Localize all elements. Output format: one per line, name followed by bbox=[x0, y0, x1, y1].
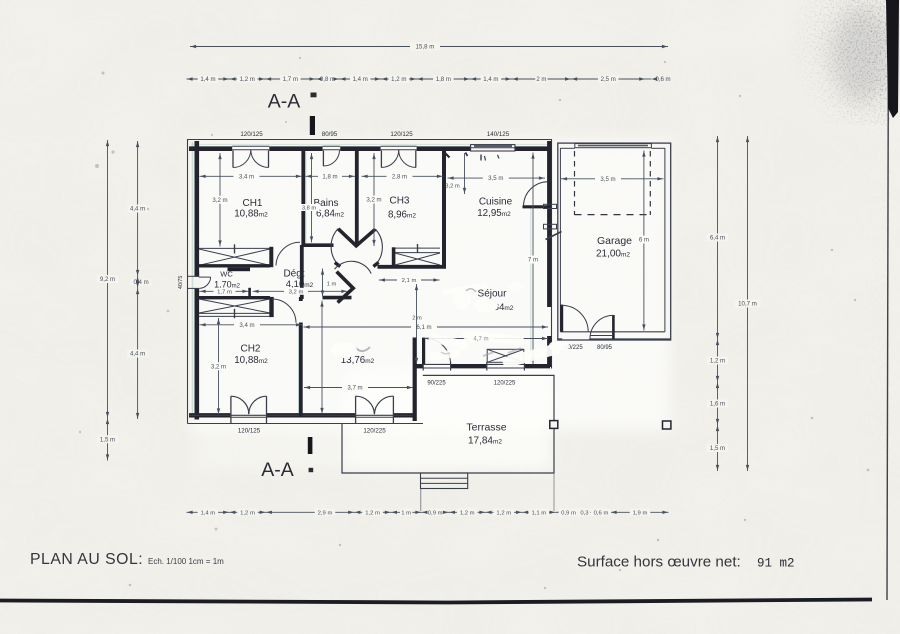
svg-text:1,5 m: 1,5 m bbox=[100, 436, 115, 443]
svg-text:A-A: A-A bbox=[268, 91, 301, 113]
svg-text:3,8 m: 3,8 m bbox=[302, 206, 316, 212]
svg-text:1,2 m: 1,2 m bbox=[496, 510, 511, 516]
svg-text:PLAN AU SOL:: PLAN AU SOL: bbox=[30, 551, 143, 568]
svg-text:0,6 m: 0,6 m bbox=[594, 510, 609, 516]
svg-text:Dégt: Dégt bbox=[283, 269, 304, 280]
svg-text:91 m2: 91 m2 bbox=[757, 557, 795, 571]
svg-text:3,4 m: 3,4 m bbox=[239, 173, 254, 180]
svg-text:CH3: CH3 bbox=[389, 196, 409, 207]
svg-text:2,9 m: 2,9 m bbox=[318, 510, 333, 516]
svg-text:Surface hors œuvre net:: Surface hors œuvre net: bbox=[577, 554, 741, 571]
svg-text:1,8 m: 1,8 m bbox=[322, 173, 337, 180]
svg-text:1,4 m: 1,4 m bbox=[200, 76, 215, 83]
svg-text:4,7 m: 4,7 m bbox=[473, 336, 488, 343]
svg-text:Terrasse: Terrasse bbox=[466, 422, 506, 434]
svg-text:Séjour: Séjour bbox=[478, 289, 508, 300]
svg-text:3,2 m: 3,2 m bbox=[366, 197, 381, 204]
svg-text:1,7 m: 1,7 m bbox=[283, 76, 298, 83]
svg-text:WC: WC bbox=[220, 270, 233, 279]
svg-text:1,6 m: 1,6 m bbox=[710, 401, 725, 408]
svg-text:1,2 m: 1,2 m bbox=[460, 510, 475, 516]
svg-text:4,4 m: 4,4 m bbox=[130, 351, 145, 358]
svg-text:40/75: 40/75 bbox=[178, 276, 184, 290]
svg-text:3,7 m: 3,7 m bbox=[347, 385, 362, 392]
svg-text:80/95: 80/95 bbox=[597, 345, 613, 351]
svg-text:CH1: CH1 bbox=[242, 198, 262, 209]
svg-text:1,4 m: 1,4 m bbox=[483, 76, 498, 83]
svg-text:7 m: 7 m bbox=[528, 257, 538, 264]
svg-text:1,4 m: 1,4 m bbox=[200, 510, 215, 516]
svg-text:2,1 m: 2,1 m bbox=[402, 278, 417, 284]
svg-text:CH2: CH2 bbox=[240, 344, 260, 355]
svg-text:Ech. 1/100 1cm = 1m: Ech. 1/100 1cm = 1m bbox=[148, 557, 224, 566]
svg-text:3,2 m: 3,2 m bbox=[212, 197, 227, 204]
svg-text:0,3: 0,3 bbox=[580, 510, 589, 516]
svg-text:140/125: 140/125 bbox=[487, 131, 510, 138]
svg-text:90/225: 90/225 bbox=[427, 381, 446, 387]
svg-text:120/125: 120/125 bbox=[390, 131, 413, 138]
svg-text:1,2 m: 1,2 m bbox=[240, 76, 255, 83]
svg-text:2,8 m: 2,8 m bbox=[392, 173, 407, 180]
svg-text:2 m: 2 m bbox=[412, 316, 422, 322]
svg-text:6,4 m: 6,4 m bbox=[710, 235, 725, 242]
svg-text:0,8 m: 0,8 m bbox=[320, 76, 335, 83]
svg-text:6 m: 6 m bbox=[639, 237, 649, 244]
svg-text:1,4 m: 1,4 m bbox=[353, 76, 368, 83]
svg-text:6,1 m: 6,1 m bbox=[416, 324, 431, 331]
svg-text:0,6 m: 0,6 m bbox=[655, 76, 670, 83]
svg-text:1,9 m: 1,9 m bbox=[633, 510, 648, 516]
svg-text:3,5 m: 3,5 m bbox=[600, 176, 615, 183]
svg-text:0,9 m: 0,9 m bbox=[561, 510, 576, 516]
svg-text:3,2 m: 3,2 m bbox=[289, 289, 304, 295]
svg-text:10,7 m: 10,7 m bbox=[738, 301, 757, 308]
svg-text:1,7 m: 1,7 m bbox=[217, 289, 232, 295]
svg-text:1,2 m: 1,2 m bbox=[710, 358, 725, 365]
svg-text:3,2 m: 3,2 m bbox=[211, 363, 226, 370]
svg-text:0,9 m: 0,9 m bbox=[428, 510, 443, 516]
svg-text:120/225: 120/225 bbox=[494, 381, 516, 387]
svg-text:2,5 m: 2,5 m bbox=[601, 76, 616, 83]
svg-text:0,4 m: 0,4 m bbox=[133, 279, 148, 286]
svg-text:1 m: 1 m bbox=[327, 282, 337, 288]
svg-text:80/95: 80/95 bbox=[322, 131, 338, 138]
svg-text:4,4 m: 4,4 m bbox=[130, 206, 145, 213]
svg-text:2 m: 2 m bbox=[536, 76, 546, 83]
svg-text:Cuisine: Cuisine bbox=[479, 197, 513, 208]
svg-text:9,2 m: 9,2 m bbox=[100, 276, 115, 283]
svg-text:15,8 m: 15,8 m bbox=[416, 44, 435, 51]
svg-text:120/225: 120/225 bbox=[363, 428, 386, 435]
svg-text:3,2 m: 3,2 m bbox=[445, 184, 460, 190]
svg-text:1,2 m: 1,2 m bbox=[391, 76, 406, 83]
svg-text:1,8 m: 1,8 m bbox=[436, 76, 451, 83]
svg-text:1,2 m: 1,2 m bbox=[240, 510, 255, 516]
svg-text:A-A: A-A bbox=[261, 459, 294, 481]
svg-text:3,5 m: 3,5 m bbox=[488, 175, 503, 182]
svg-text:3,4 m: 3,4 m bbox=[239, 322, 254, 329]
svg-text:1 m: 1 m bbox=[401, 510, 411, 516]
svg-text:1,2 m: 1,2 m bbox=[365, 510, 380, 516]
svg-text:Garage: Garage bbox=[597, 235, 632, 247]
svg-text:120/125: 120/125 bbox=[238, 428, 261, 435]
svg-text:1,1 m: 1,1 m bbox=[531, 510, 546, 516]
svg-text:120/125: 120/125 bbox=[240, 131, 263, 138]
svg-text:1,5 m: 1,5 m bbox=[710, 445, 725, 452]
